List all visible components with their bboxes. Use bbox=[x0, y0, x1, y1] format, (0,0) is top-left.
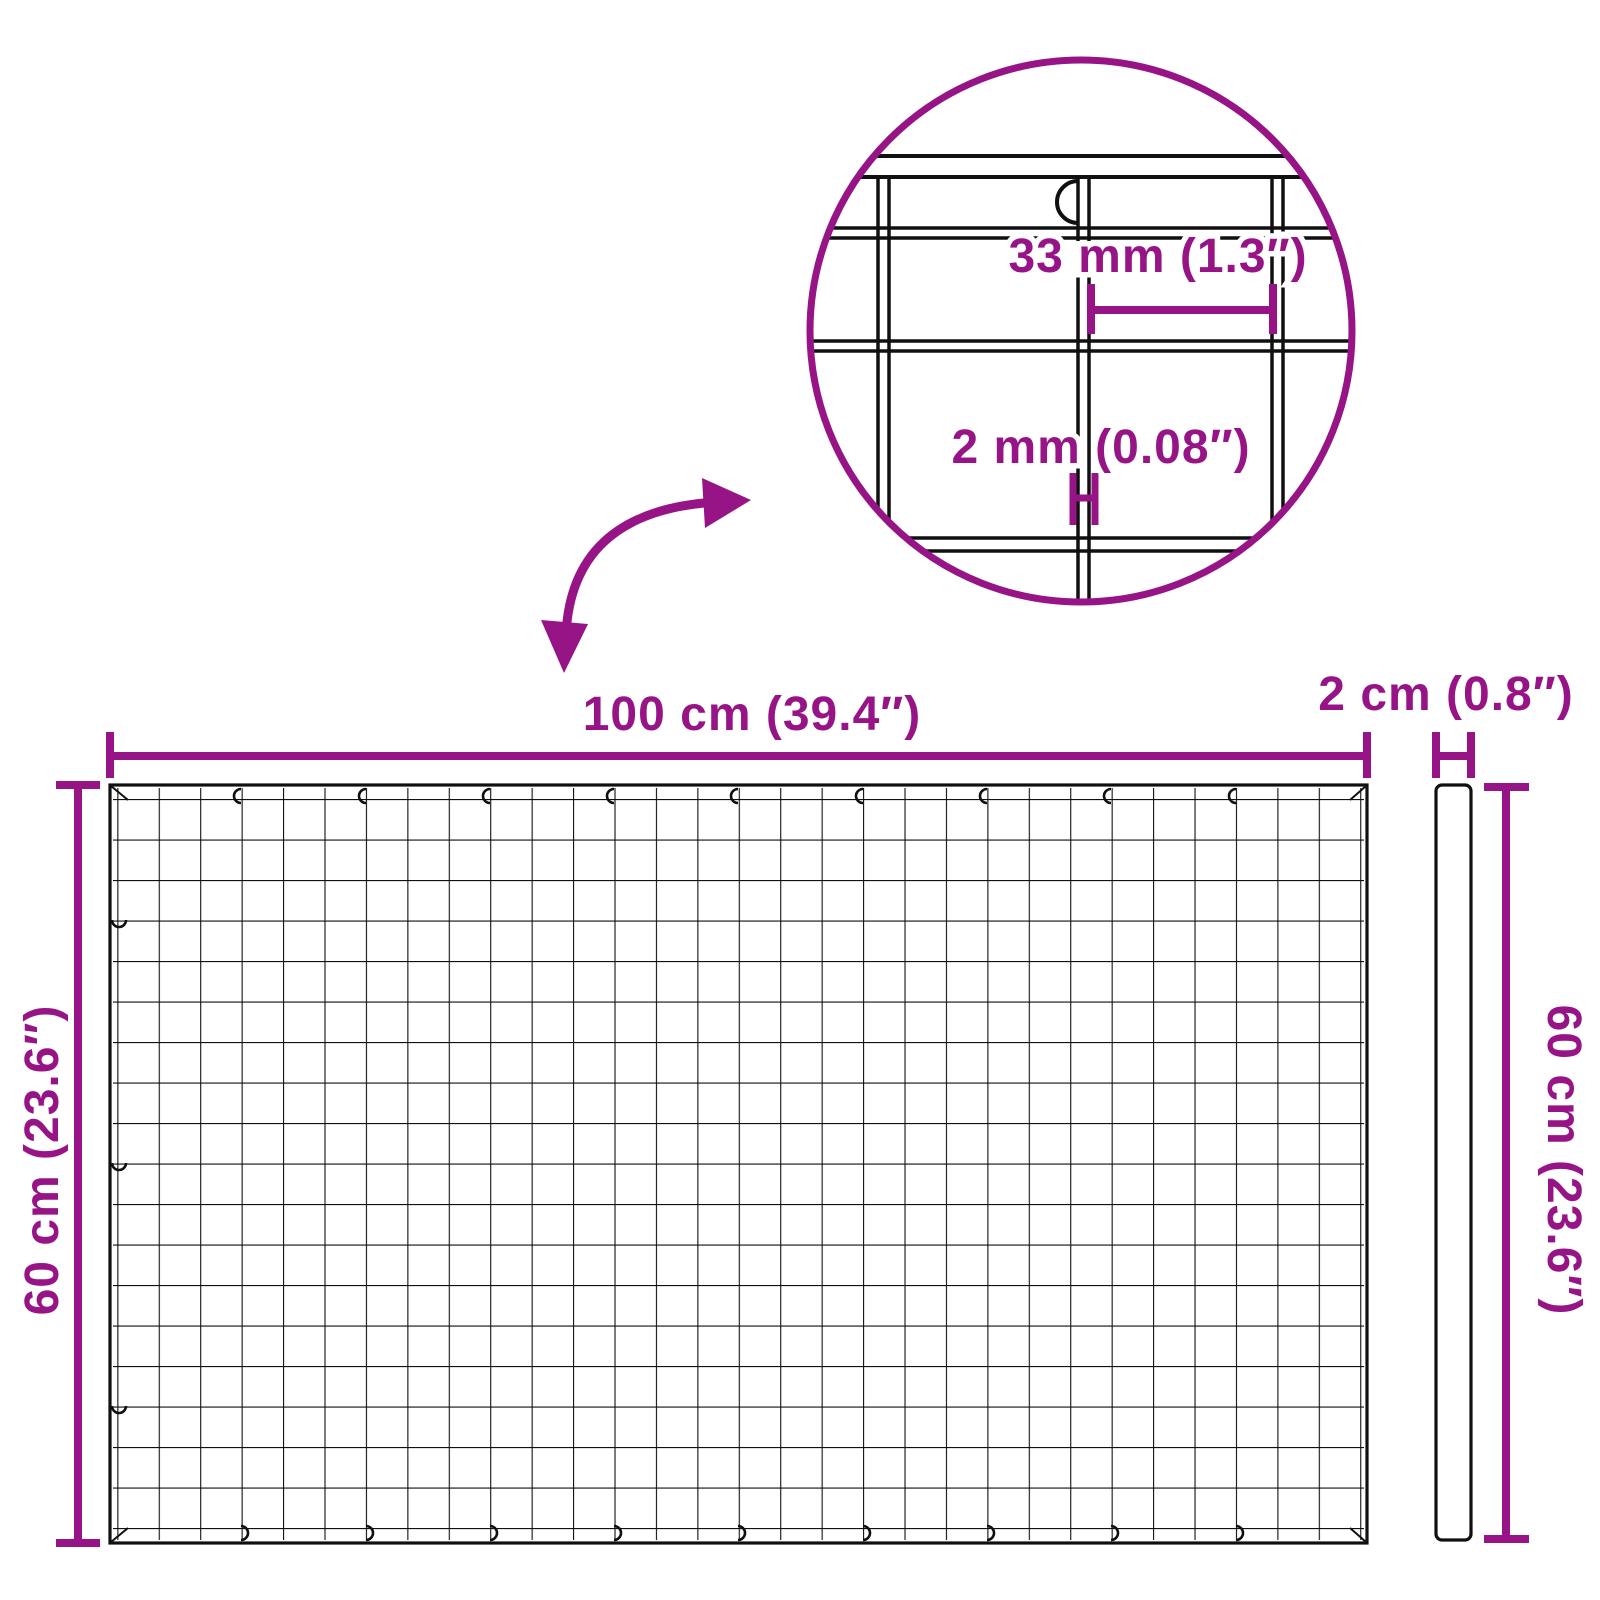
thickness-dimension-marker bbox=[1436, 732, 1471, 778]
mesh-opening-label: 33 mm (1.3″) bbox=[1008, 230, 1307, 283]
front-height-label: 60 cm (23.6″) bbox=[16, 1005, 69, 1316]
side-height-label: 60 cm (23.6″) bbox=[1537, 1005, 1590, 1316]
wire-thickness-label: 2 mm (0.08″) bbox=[951, 421, 1250, 474]
detail-mesh-closeup bbox=[795, 156, 1368, 604]
mesh-opening-dimension-line bbox=[1091, 284, 1273, 334]
front-width-label: 100 cm (39.4″) bbox=[583, 688, 922, 741]
product-dimension-diagram: 33 mm (1.3″) 2 mm (0.08″) bbox=[0, 0, 1600, 1600]
front-mesh-grid bbox=[113, 788, 1364, 1540]
diagram-canvas: 33 mm (1.3″) 2 mm (0.08″) bbox=[0, 0, 1600, 1600]
side-thickness-label: 2 cm (0.8″) bbox=[1318, 668, 1573, 721]
detail-hook bbox=[1057, 181, 1078, 223]
detail-view: 33 mm (1.3″) 2 mm (0.08″) bbox=[795, 60, 1368, 604]
wire-thickness-marker bbox=[1073, 473, 1095, 525]
zoom-arrow-icon bbox=[541, 478, 751, 673]
detail-frame-bar bbox=[795, 156, 1368, 177]
front-view: 100 cm (39.4″) 60 cm (23.6″) bbox=[16, 688, 1367, 1543]
side-panel bbox=[1436, 785, 1471, 1540]
right-height-dimension-line bbox=[1484, 787, 1529, 1539]
